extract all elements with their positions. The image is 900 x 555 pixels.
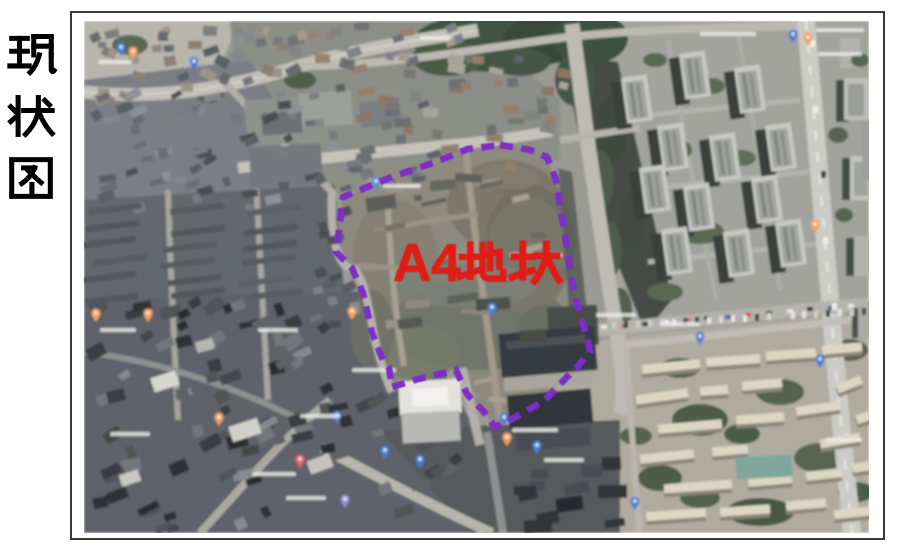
svg-text:A4: A4 — [393, 234, 461, 293]
